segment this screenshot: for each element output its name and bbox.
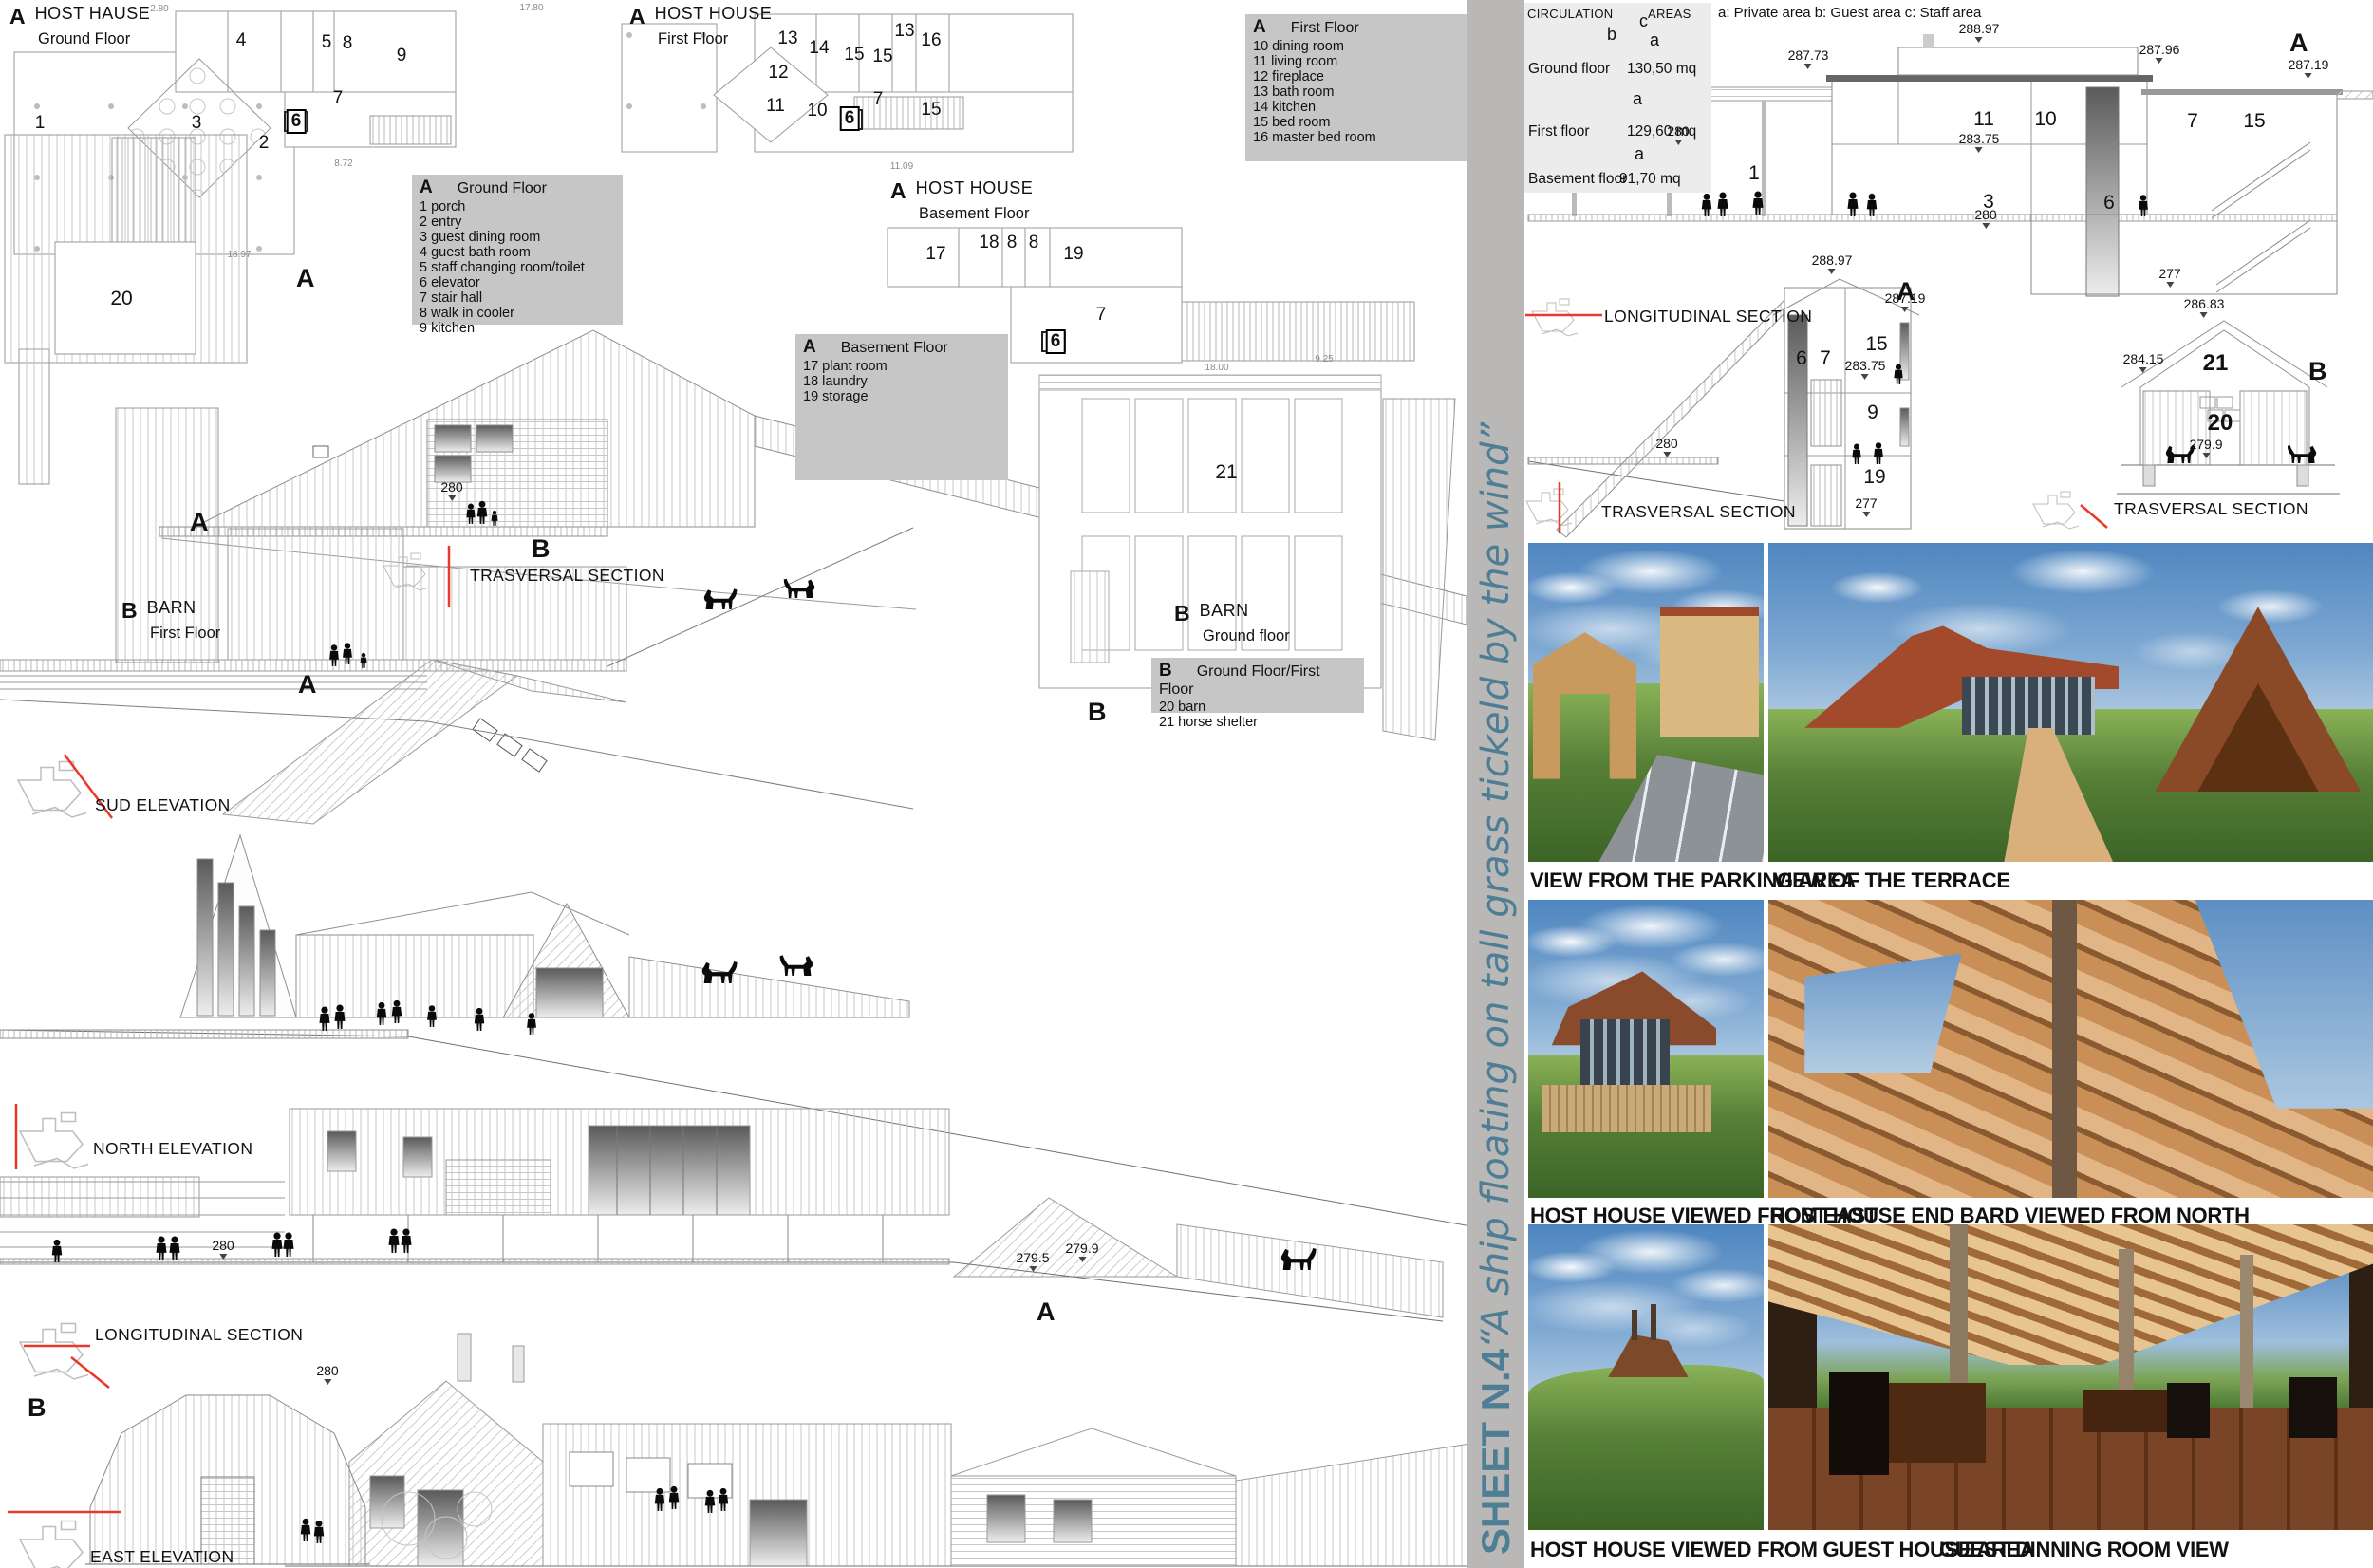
label-trasversal-section-barn: TRASVERSAL SECTION xyxy=(2114,499,2308,519)
legend-barn: BGround Floor/First Floor 20 barn21 hors… xyxy=(1151,658,1364,713)
zone-letter: a xyxy=(1635,144,1644,164)
zone-letter: c xyxy=(1639,11,1648,31)
render-chair xyxy=(1829,1372,1890,1475)
label-trasversal-section-left: TRASVERSAL SECTION xyxy=(470,566,664,586)
room-number: 19 xyxy=(1863,466,1885,489)
render-house-glass xyxy=(1962,677,2095,734)
title-host-hause-ground: AHOST HAUSE Ground Floor xyxy=(9,4,150,48)
room-number: 21 xyxy=(2203,350,2229,377)
dimension-label: 18.97 xyxy=(227,250,251,260)
level-mark: 279.9 xyxy=(2189,437,2222,458)
room-number: 10 xyxy=(807,101,827,121)
building-marker: B xyxy=(532,534,551,564)
room-number: 8 xyxy=(1007,233,1018,253)
room-number: 2 xyxy=(259,133,270,154)
room-number: 14 xyxy=(809,38,829,59)
sheet-number: SHEET N.4 xyxy=(1467,1349,1524,1555)
room-number: 7 xyxy=(1820,347,1831,370)
render-view-east xyxy=(1528,900,1764,1198)
level-mark: 280 xyxy=(212,1238,234,1260)
render-table xyxy=(1878,1383,1987,1463)
room-number: 21 xyxy=(1215,461,1237,484)
render-house-glass xyxy=(1580,1019,1670,1085)
label-trasversal-section-house: TRASVERSAL SECTION xyxy=(1601,502,1796,522)
render-view-terrace xyxy=(1768,543,2373,862)
render-view-parking xyxy=(1528,543,1764,862)
presentation-sheet: AHOST HAUSE Ground Floor AHOST HOUSE Fir… xyxy=(0,0,2373,1568)
room-number: 7 xyxy=(873,89,884,110)
room-number: 15 xyxy=(844,45,864,65)
sheet-title-banner: SHEET N.4 “A ship floating on tall grass… xyxy=(1467,0,1524,1568)
level-mark: 280 xyxy=(1974,207,1996,229)
panel-row-label: Basement floor xyxy=(1528,171,1627,188)
room-number: 6 xyxy=(2103,192,2115,215)
panel-header-circulation: CIRCULATION xyxy=(1527,7,1613,21)
render-chair xyxy=(2167,1383,2210,1438)
level-mark: 283.75 xyxy=(1959,131,2000,153)
room-number: 15 xyxy=(2243,110,2265,133)
render-view-guest-area xyxy=(1528,1224,1764,1530)
level-mark: 279.9 xyxy=(1065,1241,1098,1262)
room-number: 16 xyxy=(921,30,941,51)
dimension-label: 2.80 xyxy=(150,4,168,14)
legend-first-floor: AFirst Floor 10 dining room11 living roo… xyxy=(1245,14,1467,161)
title-host-house-first: AHOST HOUSE First Floor xyxy=(629,4,772,48)
room-number: 15 xyxy=(921,100,941,121)
zones-note: a: Private area b: Guest area c: Staff a… xyxy=(1718,5,1981,21)
level-mark: 284.15 xyxy=(2123,351,2164,373)
room-number: 8 xyxy=(1029,233,1039,253)
room-number: 9 xyxy=(397,46,407,66)
room-number: 19 xyxy=(1063,244,1083,265)
building-marker: B xyxy=(2308,357,2327,386)
room-number: 11 xyxy=(1973,108,1994,131)
level-mark: 280 xyxy=(1667,123,1689,145)
label-east-elevation: EAST ELEVATION xyxy=(90,1547,234,1567)
dimension-label: 8.72 xyxy=(334,159,352,169)
room-number: 7 xyxy=(333,88,344,109)
render-post xyxy=(2052,900,2076,1198)
room-number: 1 xyxy=(1748,162,1760,185)
room-number: 6 xyxy=(1796,347,1807,370)
zone-letter: b xyxy=(1607,25,1616,45)
dimension-label: 9.25 xyxy=(1315,354,1333,364)
level-mark: 277 xyxy=(1855,495,1877,517)
photo-caption: VIEW OF THE TERRACE xyxy=(1773,868,2010,893)
room-number: 10 xyxy=(2034,108,2056,131)
level-mark: 287.19 xyxy=(2289,57,2329,79)
panel-row-value: 130,50 mq xyxy=(1627,61,1696,78)
legend-ground-floor: AGround Floor 1 porch2 entry 3 guest din… xyxy=(412,175,623,325)
panel-row-value: 91,70 mq xyxy=(1619,171,1681,188)
label-longitudinal-section-left: LONGITUDINAL SECTION xyxy=(95,1325,303,1345)
level-mark: 287.96 xyxy=(2139,42,2180,64)
level-mark: 287.19 xyxy=(1885,290,1926,312)
render-column xyxy=(2240,1255,2253,1413)
building-marker: A xyxy=(190,508,209,537)
room-number-elevator: 6 xyxy=(840,106,860,131)
photo-caption: GUEST DINNING ROOM VIEW xyxy=(1939,1538,2229,1562)
render-building xyxy=(1660,607,1759,737)
sheet-quote: “A ship floating on tall grass tickeld b… xyxy=(1467,422,1524,1349)
level-mark: 279.5 xyxy=(1016,1250,1049,1272)
level-mark: 286.83 xyxy=(2184,296,2225,318)
render-chimney xyxy=(1632,1310,1637,1340)
room-number: 1 xyxy=(35,113,46,134)
title-barn-first: BBARN First Floor xyxy=(121,598,220,643)
render-fence xyxy=(1542,1085,1712,1132)
level-mark: 287.73 xyxy=(1788,47,1829,69)
level-mark: 280 xyxy=(1655,436,1677,457)
dimension-label: 17.80 xyxy=(519,3,543,13)
room-number: 5 xyxy=(322,32,332,53)
room-number-elevator: 6 xyxy=(1046,329,1066,354)
render-end-bard xyxy=(1768,900,2373,1198)
room-number: 15 xyxy=(1865,333,1887,356)
dimension-label: 11.09 xyxy=(890,161,913,172)
room-number: 3 xyxy=(192,113,202,134)
panel-header-areas: AREAS xyxy=(1648,7,1691,21)
room-number: 13 xyxy=(777,28,797,49)
legend-basement-floor: ABasement Floor 17 plant room18 laundry … xyxy=(795,334,1008,480)
render-chair xyxy=(2289,1377,2337,1438)
panel-row-label: First floor xyxy=(1528,123,1590,140)
room-number: 20 xyxy=(110,288,132,310)
render-dining-room xyxy=(1768,1224,2373,1530)
room-number: 7 xyxy=(1096,305,1107,326)
grass xyxy=(1528,1365,1764,1530)
building-marker: A xyxy=(1037,1297,1056,1327)
room-number: 13 xyxy=(894,21,914,42)
level-mark: 280 xyxy=(316,1363,338,1385)
room-number: 7 xyxy=(2187,110,2198,133)
zone-letter: a xyxy=(1633,89,1642,109)
render-table xyxy=(2083,1390,2167,1432)
building-marker: A xyxy=(2289,28,2308,58)
dimension-label: 18.00 xyxy=(1205,363,1228,373)
level-mark: 277 xyxy=(2158,266,2180,288)
level-mark: 288.97 xyxy=(1959,21,2000,43)
room-number: 8 xyxy=(343,33,353,54)
label-sud-elevation: SUD ELEVATION xyxy=(95,795,231,815)
level-mark: 283.75 xyxy=(1845,358,1886,380)
room-number: 11 xyxy=(766,96,785,117)
room-number: 15 xyxy=(872,47,892,67)
title-barn-ground: BBARN Ground floor xyxy=(1174,601,1290,645)
room-number: 20 xyxy=(2208,410,2233,437)
building-marker: B xyxy=(28,1393,47,1423)
room-number: 18 xyxy=(979,233,999,253)
label-north-elevation: NORTH ELEVATION xyxy=(93,1139,252,1159)
render-chimney xyxy=(1651,1304,1656,1341)
building-marker: A xyxy=(298,670,317,700)
room-number: 12 xyxy=(768,63,788,84)
room-number: 9 xyxy=(1867,401,1878,424)
label-longitudinal-section-right: LONGITUDINAL SECTION xyxy=(1604,307,1812,327)
room-number: 4 xyxy=(236,30,247,51)
panel-row-label: Ground floor xyxy=(1528,61,1610,78)
room-number-elevator: 6 xyxy=(287,109,307,134)
level-mark: 280 xyxy=(440,479,462,501)
title-host-house-basement: AHOST HOUSE Basement Floor xyxy=(890,178,1033,223)
level-mark: 288.97 xyxy=(1812,252,1853,274)
zone-letter: a xyxy=(1650,30,1659,50)
room-number: 17 xyxy=(925,244,945,265)
building-marker: A xyxy=(296,264,315,293)
building-marker: B xyxy=(1088,698,1107,727)
